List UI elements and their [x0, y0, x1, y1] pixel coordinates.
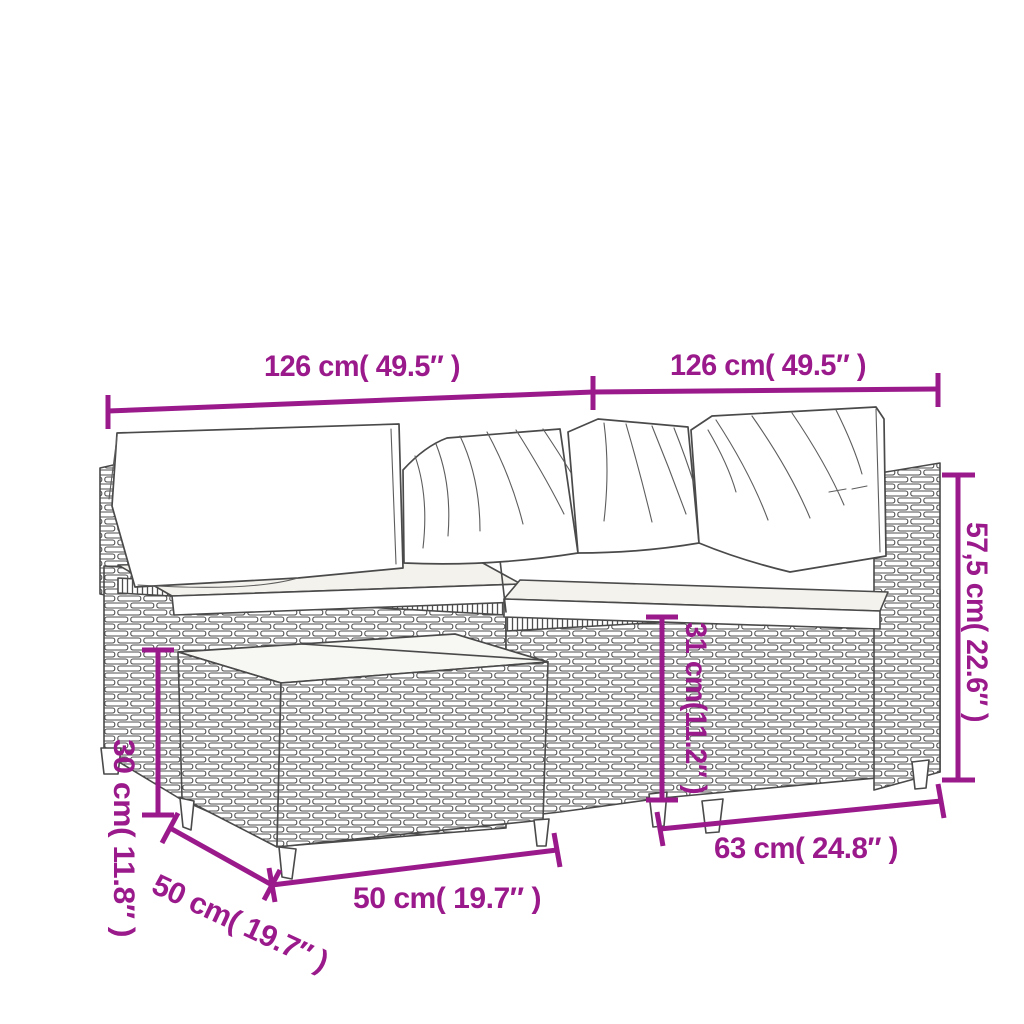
dimension-label-sofa-left-width: 126 cm( 49.5″ ) [264, 350, 460, 383]
dimension-label-sofa-total-height: 57,5 cm( 22.6″ ) [960, 522, 993, 722]
dimension-line [593, 389, 938, 392]
dimension-label-table-depth: 50 cm( 19.7″ ) [147, 868, 333, 978]
dim-sofa-seat-depth: 63 cm( 24.8″ ) [657, 784, 944, 865]
product-dimension-diagram: 126 cm( 49.5″ ) 126 cm( 49.5″ ) 57,5 cm(… [0, 0, 1024, 1024]
back-cushion-2 [403, 429, 578, 564]
table-left-face [178, 652, 281, 847]
dimension-tick [938, 784, 944, 818]
dimension-label-sofa-right-width: 126 cm( 49.5″ ) [670, 349, 866, 382]
dim-sofa-right-width: 126 cm( 49.5″ ) [593, 349, 938, 407]
back-cushion-1 [112, 424, 403, 587]
table-leg [534, 819, 549, 846]
sofa-foot [912, 760, 929, 789]
dimension-label-sofa-seat-height: 31 cm(11.2″ ) [679, 622, 712, 794]
dimension-line [108, 392, 593, 411]
back-cushions [109, 407, 886, 587]
table-leg [180, 798, 194, 830]
dimension-label-table-width: 50 cm( 19.7″ ) [353, 882, 541, 915]
back-cushion-3 [568, 419, 699, 553]
dim-sofa-left-width: 126 cm( 49.5″ ) [108, 350, 593, 429]
back-cushion-4 [691, 407, 886, 572]
dimension-label-table-height: 30 cm( 11.8″ ) [107, 739, 140, 937]
dim-table-width: 50 cm( 19.7″ ) [269, 833, 560, 915]
dimension-label-sofa-seat-depth: 63 cm( 24.8″ ) [714, 832, 898, 865]
dimension-diagram-svg: 126 cm( 49.5″ ) 126 cm( 49.5″ ) 57,5 cm(… [0, 0, 1024, 1024]
dim-sofa-total-height: 57,5 cm( 22.6″ ) [942, 475, 993, 780]
coffee-table-line-art [178, 634, 549, 879]
table-front-face [277, 662, 548, 847]
sofa-foot [702, 799, 723, 833]
dimension-line [272, 850, 557, 885]
table-leg [279, 847, 296, 879]
dimension-tick [554, 833, 560, 867]
